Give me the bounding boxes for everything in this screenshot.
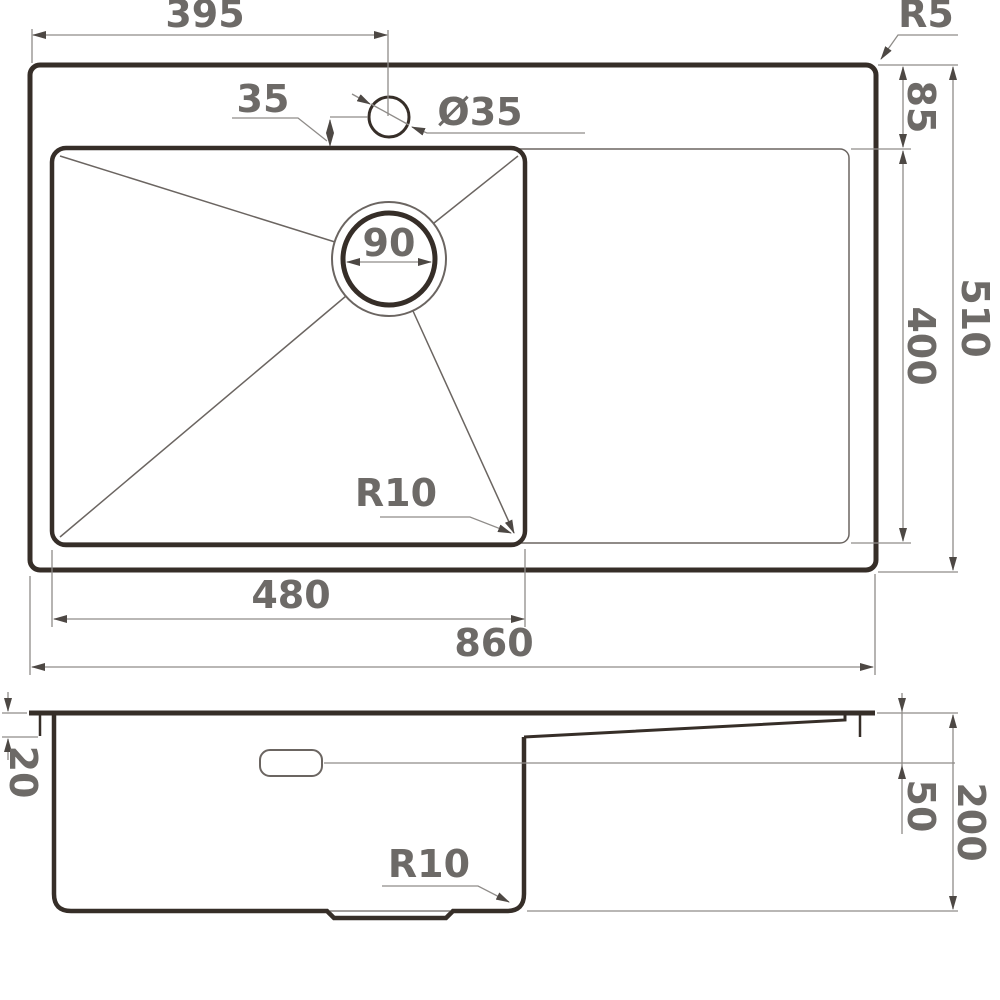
dim-right-stack: 85 400 510 xyxy=(851,65,997,572)
bowl-width-label: 480 xyxy=(251,573,330,617)
drawing-canvas: 90 Ø35 35 395 R5 xyxy=(0,0,1000,1000)
section-view: 20 R10 50 200 xyxy=(1,692,993,918)
tap-center-width-label: 395 xyxy=(165,0,244,36)
total-height-label: 200 xyxy=(949,782,993,861)
sink-outer-outline xyxy=(30,65,876,570)
diagonal-bottom-left xyxy=(60,296,346,537)
rim-lip-outline xyxy=(52,149,849,543)
dim-tap-center: 395 xyxy=(32,0,387,63)
faucet-diameter-chord xyxy=(371,104,409,125)
dim-bottom-corner-radius: R10 xyxy=(382,842,509,902)
dim-rim-height: 20 xyxy=(1,692,45,798)
corner-radius-leader xyxy=(881,35,958,59)
dim-bowl-width: 480 xyxy=(52,549,525,627)
bowl-diagonals xyxy=(60,156,518,537)
bowl-depth-label: 400 xyxy=(899,306,943,385)
tap-offset-leader xyxy=(232,118,327,141)
dim-tap-offset: 35 xyxy=(232,77,368,146)
board-depth-label: 50 xyxy=(899,780,943,833)
bottom-corner-leader xyxy=(382,886,509,902)
tap-diameter-label: Ø35 xyxy=(437,90,522,134)
diagonal-top-right xyxy=(434,156,518,223)
bowl-corner-leader xyxy=(380,517,511,533)
dim-bowl-corner-radius: R10 xyxy=(355,471,511,533)
total-depth-label: 510 xyxy=(953,278,997,357)
top-view: 90 Ø35 35 395 R5 xyxy=(30,0,997,675)
dim-corner-radius: R5 xyxy=(881,0,958,59)
bowl-corner-radius-label: R10 xyxy=(355,471,437,515)
overflow-hole xyxy=(260,750,322,776)
tap-offset-label: 35 xyxy=(237,77,290,121)
drainboard-surface xyxy=(524,713,845,737)
corner-radius-label: R5 xyxy=(898,0,954,36)
rim-height-label: 20 xyxy=(1,746,45,799)
rim-to-bowl-label: 85 xyxy=(899,81,943,134)
faucet-hole: Ø35 xyxy=(352,30,585,137)
faucet-hole-circle xyxy=(369,97,409,137)
bottom-corner-radius-label: R10 xyxy=(388,842,470,886)
total-width-label: 860 xyxy=(454,621,533,665)
faucet-diameter-arrow-left xyxy=(352,94,370,104)
bowl-profile xyxy=(54,713,524,918)
diagonal-top-left xyxy=(60,156,335,242)
drain-hole: 90 xyxy=(332,202,446,316)
sink-dimension-drawing: 90 Ø35 35 395 R5 xyxy=(0,0,1000,1000)
drain-diameter-label: 90 xyxy=(363,221,416,265)
dim-total-width: 860 xyxy=(30,574,875,675)
